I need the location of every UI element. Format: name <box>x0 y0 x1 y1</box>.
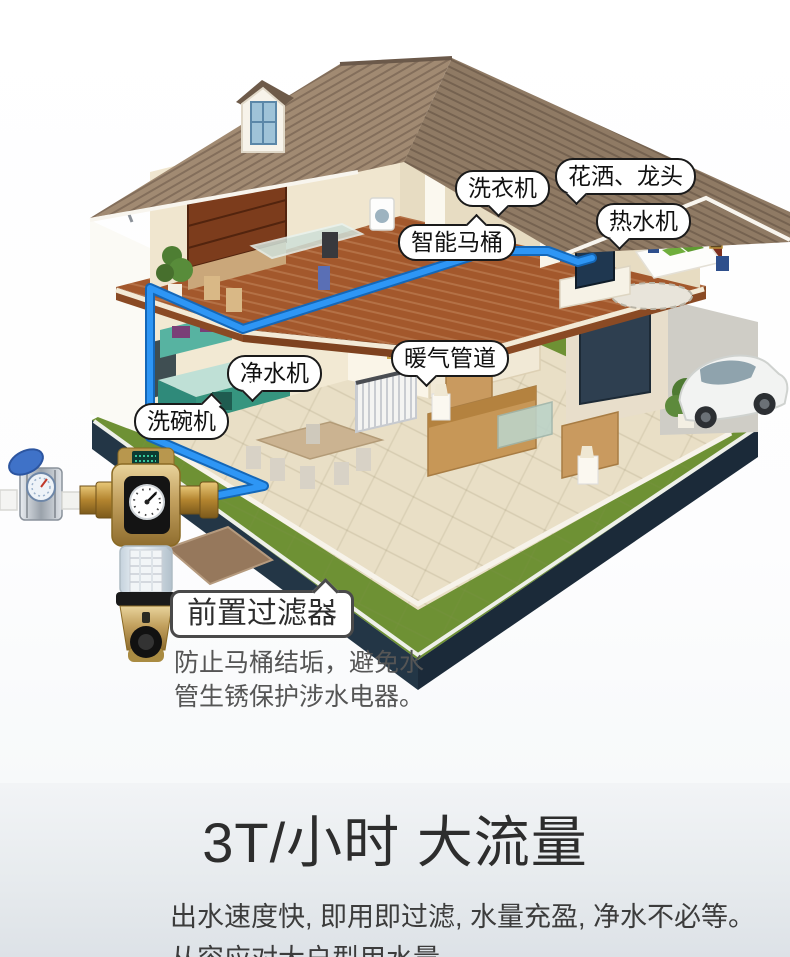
subtitle-line1: 出水速度快, 即用即过滤, 水量充盈, 净水不必等。 <box>170 897 755 937</box>
callout-water-heater: 热水机 <box>596 203 691 240</box>
callout-smart-toilet: 智能马桶 <box>398 224 516 261</box>
callout-heating-pipes: 暖气管道 <box>391 340 509 377</box>
callout-label: 花洒、龙头 <box>568 163 683 189</box>
headline-section: 3T/小时 大流量 出水速度快, 即用即过滤, 水量充盈, 净水不必等。 从容应… <box>0 783 790 957</box>
callout-dishwasher: 洗碗机 <box>134 403 229 440</box>
product-detail-image: 洗衣机 花洒、龙头 热水机 智能马桶 暖气管道 净水机 洗碗机 前 <box>0 0 790 957</box>
exterior-wall <box>90 220 150 437</box>
prefilter-desc-line2: 管生锈保护涉水电器。 <box>174 680 454 714</box>
page-title: 3T/小时 大流量 <box>0 811 790 875</box>
prefilter-desc-line1: 防止马桶结垢，避免水 <box>174 646 454 680</box>
callout-water-purifier: 净水机 <box>227 355 322 392</box>
prefilter-title: 前置过滤器 <box>187 597 337 630</box>
callout-label: 洗衣机 <box>468 175 537 201</box>
subtitle-line2: 从容应对大户型用水量 <box>170 939 440 957</box>
callout-label: 暖气管道 <box>404 345 496 371</box>
pressure-gauge-icon <box>130 485 164 519</box>
callout-label: 洗碗机 <box>147 408 216 434</box>
house-illustration-section: 洗衣机 花洒、龙头 热水机 智能马桶 暖气管道 净水机 洗碗机 前 <box>0 0 790 783</box>
callout-shower-faucet: 花洒、龙头 <box>555 158 696 195</box>
callout-washing-machine: 洗衣机 <box>455 170 550 207</box>
callout-label: 智能马桶 <box>411 229 503 255</box>
prefilter-description: 防止马桶结垢，避免水 管生锈保护涉水电器。 <box>174 646 454 714</box>
filter-cup <box>120 546 172 594</box>
prefilter-label: 前置过滤器 <box>170 590 354 638</box>
